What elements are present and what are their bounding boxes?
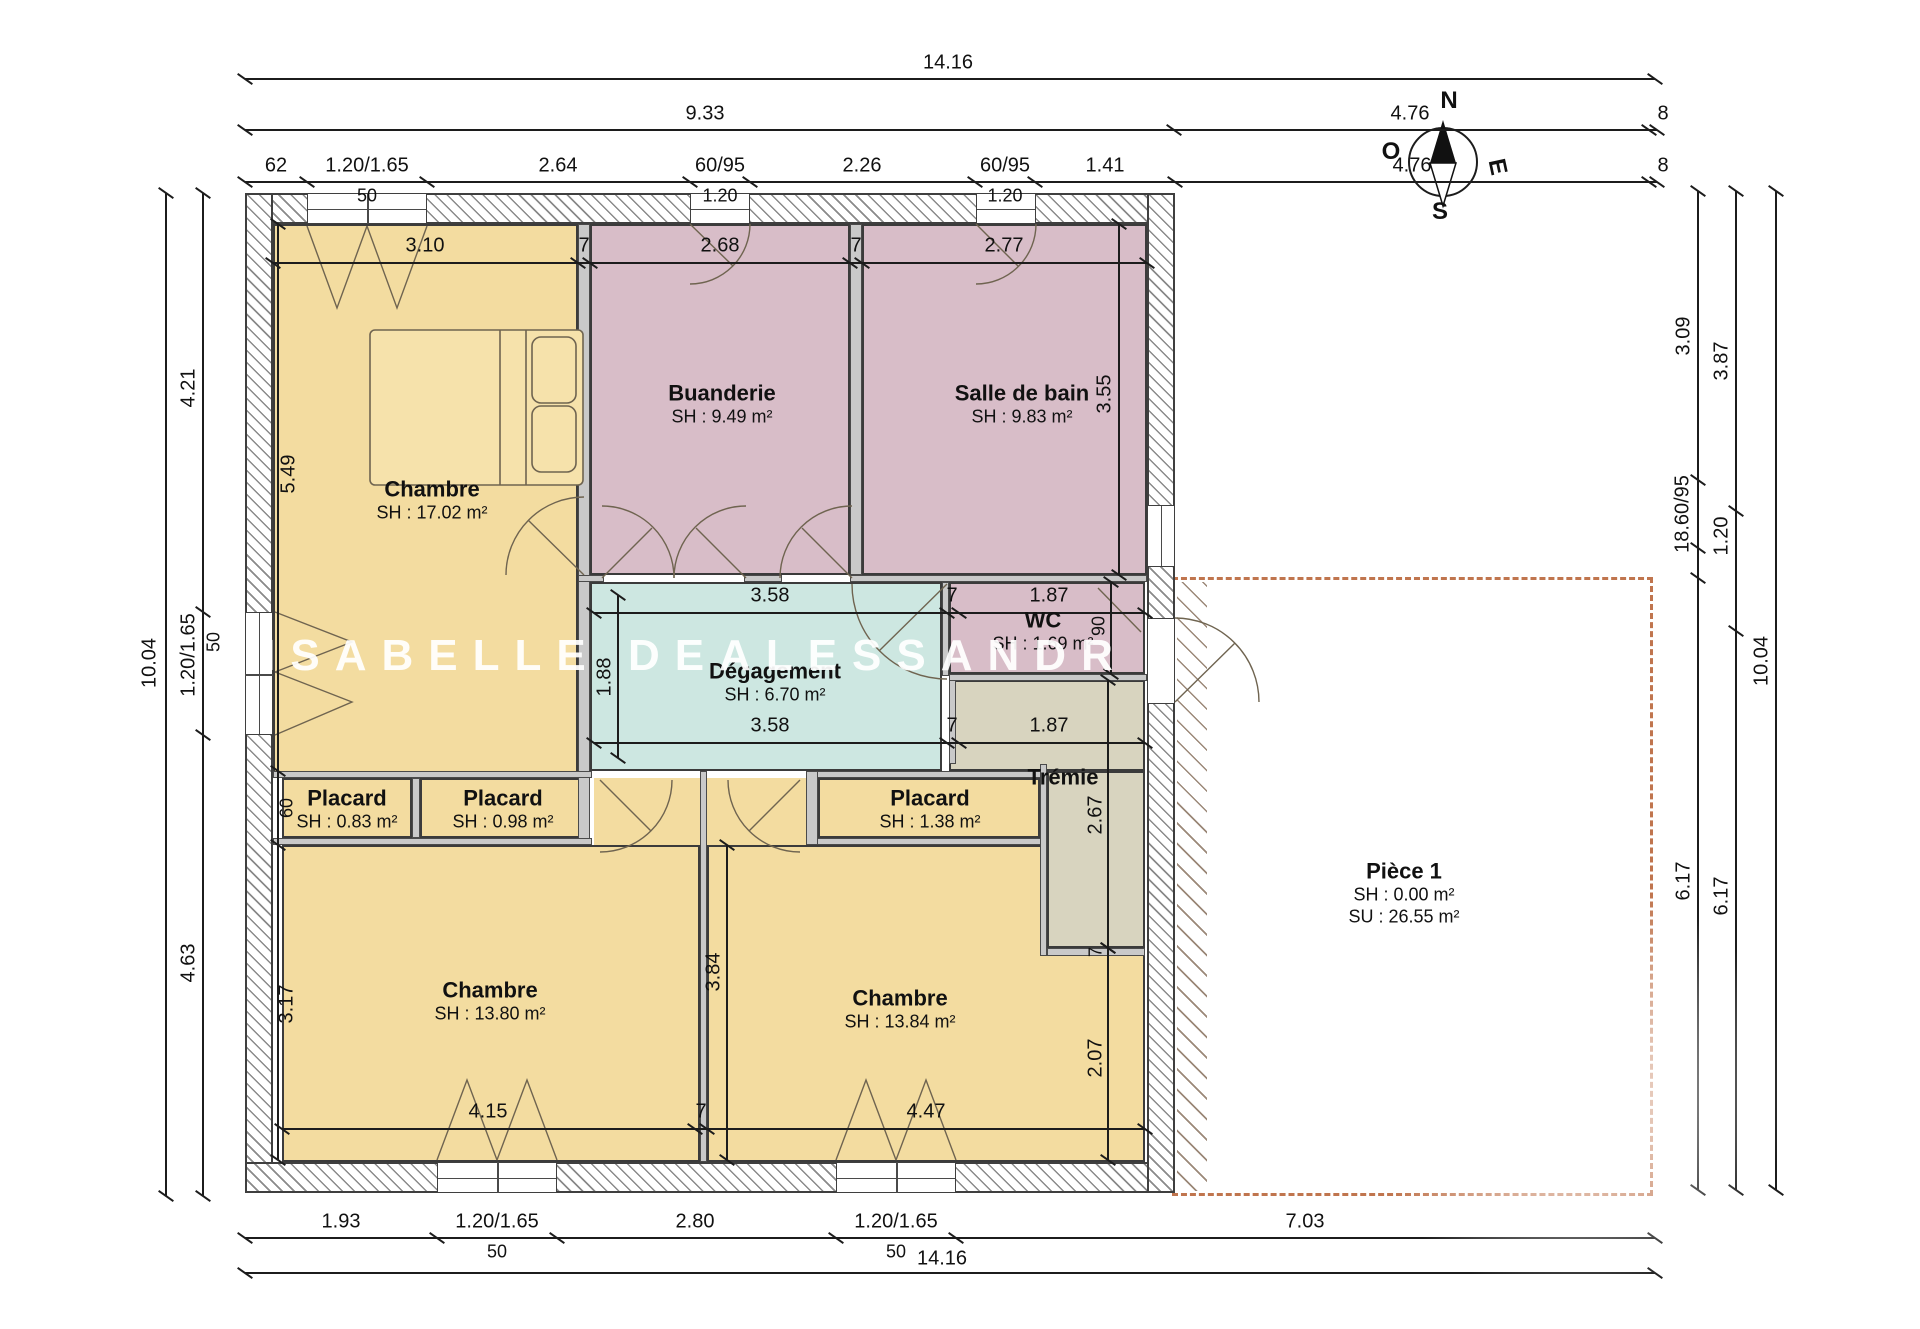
- compass-south-label: S: [1432, 198, 1448, 226]
- room-name: Placard: [452, 786, 553, 811]
- dimension-label: 3.17: [276, 985, 299, 1024]
- dimension-label: 10.04: [139, 638, 162, 688]
- dimension-label: 3.87: [1711, 342, 1734, 381]
- dimension-label: 1.87: [1030, 715, 1069, 738]
- dimension-label: 1.20: [1711, 517, 1734, 556]
- dimension-label: 60: [277, 798, 298, 818]
- dimension-label: 2.67: [1085, 796, 1108, 835]
- room-label: Trémie: [1028, 765, 1099, 790]
- dimension-label: 7: [946, 585, 957, 608]
- room-name: Buanderie: [668, 381, 776, 406]
- watermark-fade-overlay: [1360, 880, 1790, 1300]
- dimension-label: 50: [357, 186, 377, 207]
- dimension-label: 60/95: [980, 155, 1030, 178]
- room-area: SH : 6.70 m²: [709, 684, 841, 706]
- dimension-label: 2.80: [676, 1211, 715, 1234]
- dimension-line: [245, 129, 1657, 131]
- dimension-label: 3.58: [751, 715, 790, 738]
- room-name: Salle de bain: [955, 381, 1090, 406]
- room-area: SH : 1.38 m²: [879, 811, 980, 833]
- dimension-label: 50: [886, 1242, 906, 1263]
- dimension-label: 2.07: [1085, 1039, 1108, 1078]
- dimension-label: 4.15: [469, 1101, 508, 1124]
- dimension-label: 7: [946, 715, 957, 738]
- dimension-line: [165, 193, 167, 1196]
- dimension-line: [1118, 224, 1120, 575]
- room-area: SH : 9.49 m²: [668, 406, 776, 428]
- dimension-label: 3.55: [1094, 375, 1117, 414]
- dimension-label: 7: [695, 1101, 706, 1124]
- room-area: SH : 13.84 m²: [844, 1011, 955, 1033]
- room-label: PlacardSH : 0.83 m²: [296, 786, 397, 833]
- dimension-label: 14.16: [923, 52, 973, 75]
- dimension-label: 9.33: [686, 103, 725, 126]
- dimension-label: 2.77: [985, 235, 1024, 258]
- room-name: Trémie: [1028, 765, 1099, 790]
- dimension-line: [282, 1128, 1145, 1130]
- room-name: Chambre: [434, 978, 545, 1003]
- dimension-label: 1.20/1.65: [854, 1211, 937, 1234]
- compass-west-label: O: [1382, 138, 1401, 166]
- room-label: ChambreSH : 17.02 m²: [376, 477, 487, 524]
- dimension-label: 1.20/1.65: [455, 1211, 538, 1234]
- dimension-label: 3.10: [406, 235, 445, 258]
- floorplan-canvas: ChambreSH : 17.02 m²BuanderieSH : 9.49 m…: [0, 0, 1920, 1329]
- dimension-label: 14.16: [917, 1248, 967, 1271]
- compass-north-label: N: [1440, 87, 1457, 115]
- dimension-label: 2.64: [539, 155, 578, 178]
- dimension-label: 1.93: [322, 1211, 361, 1234]
- bed-icon: [370, 330, 583, 485]
- dimension-label: 3.58: [751, 585, 790, 608]
- dimension-label: 10.04: [1751, 636, 1774, 686]
- dimension-label: 1.20: [987, 186, 1022, 207]
- dimension-label: 7: [1086, 947, 1107, 957]
- dimension-label: 4.76: [1391, 103, 1430, 126]
- dimension-label: 60/95: [695, 155, 745, 178]
- dimension-label: 7.03: [1286, 1211, 1325, 1234]
- room-name: Placard: [879, 786, 980, 811]
- dimension-line: [202, 193, 204, 1196]
- room-area: SH : 13.80 m²: [434, 1003, 545, 1025]
- dimension-label: 7: [578, 235, 589, 258]
- room-name: Chambre: [376, 477, 487, 502]
- room-area: SH : 17.02 m²: [376, 502, 487, 524]
- room-label: ChambreSH : 13.80 m²: [434, 978, 545, 1025]
- dimension-line: [726, 845, 728, 1160]
- dimension-label: 62: [265, 155, 287, 178]
- room-area: SH : 9.83 m²: [955, 406, 1090, 428]
- dimension-label: 5.49: [278, 455, 301, 494]
- dimension-label: 8: [1657, 103, 1668, 126]
- room-name: WC: [992, 608, 1093, 633]
- dimension-label: 4.47: [907, 1101, 946, 1124]
- room-label: PlacardSH : 1.38 m²: [879, 786, 980, 833]
- room-name: Placard: [296, 786, 397, 811]
- room-label: ChambreSH : 13.84 m²: [844, 986, 955, 1033]
- dimension-label: 1.41: [1086, 155, 1125, 178]
- room-area: SH : 0.98 m²: [452, 811, 553, 833]
- dimension-label: 7: [850, 235, 861, 258]
- dimension-label: 1.20/1.65: [325, 155, 408, 178]
- room-area: SH : 0.83 m²: [296, 811, 397, 833]
- dimension-line: [245, 181, 1657, 183]
- dimension-label: 4.21: [178, 369, 201, 408]
- dimension-label: 18.60/95: [1672, 475, 1695, 553]
- dimension-label: 4.63: [178, 944, 201, 983]
- dimension-label: 8: [1657, 155, 1668, 178]
- dimension-label: 3.84: [703, 953, 726, 992]
- dimension-line: [273, 262, 1147, 264]
- dimension-label: 2.68: [701, 235, 740, 258]
- dimension-label: 50: [487, 1242, 507, 1263]
- room-label: BuanderieSH : 9.49 m²: [668, 381, 776, 428]
- dimension-label: 3.09: [1673, 317, 1696, 356]
- room-label: PlacardSH : 0.98 m²: [452, 786, 553, 833]
- room-label: Salle de bainSH : 9.83 m²: [955, 381, 1090, 428]
- dimension-label: 2.26: [843, 155, 882, 178]
- room-name: Chambre: [844, 986, 955, 1011]
- dimension-line: [245, 78, 1655, 80]
- dimension-label: 1.20/1.65: [178, 613, 201, 696]
- dimension-label: 1.20: [702, 186, 737, 207]
- watermark-text: ISABELLE DEALESSANDR: [243, 631, 1148, 681]
- dimension-label: 50: [204, 632, 225, 652]
- dimension-line: [594, 742, 1145, 744]
- dimension-label: 1.87: [1030, 585, 1069, 608]
